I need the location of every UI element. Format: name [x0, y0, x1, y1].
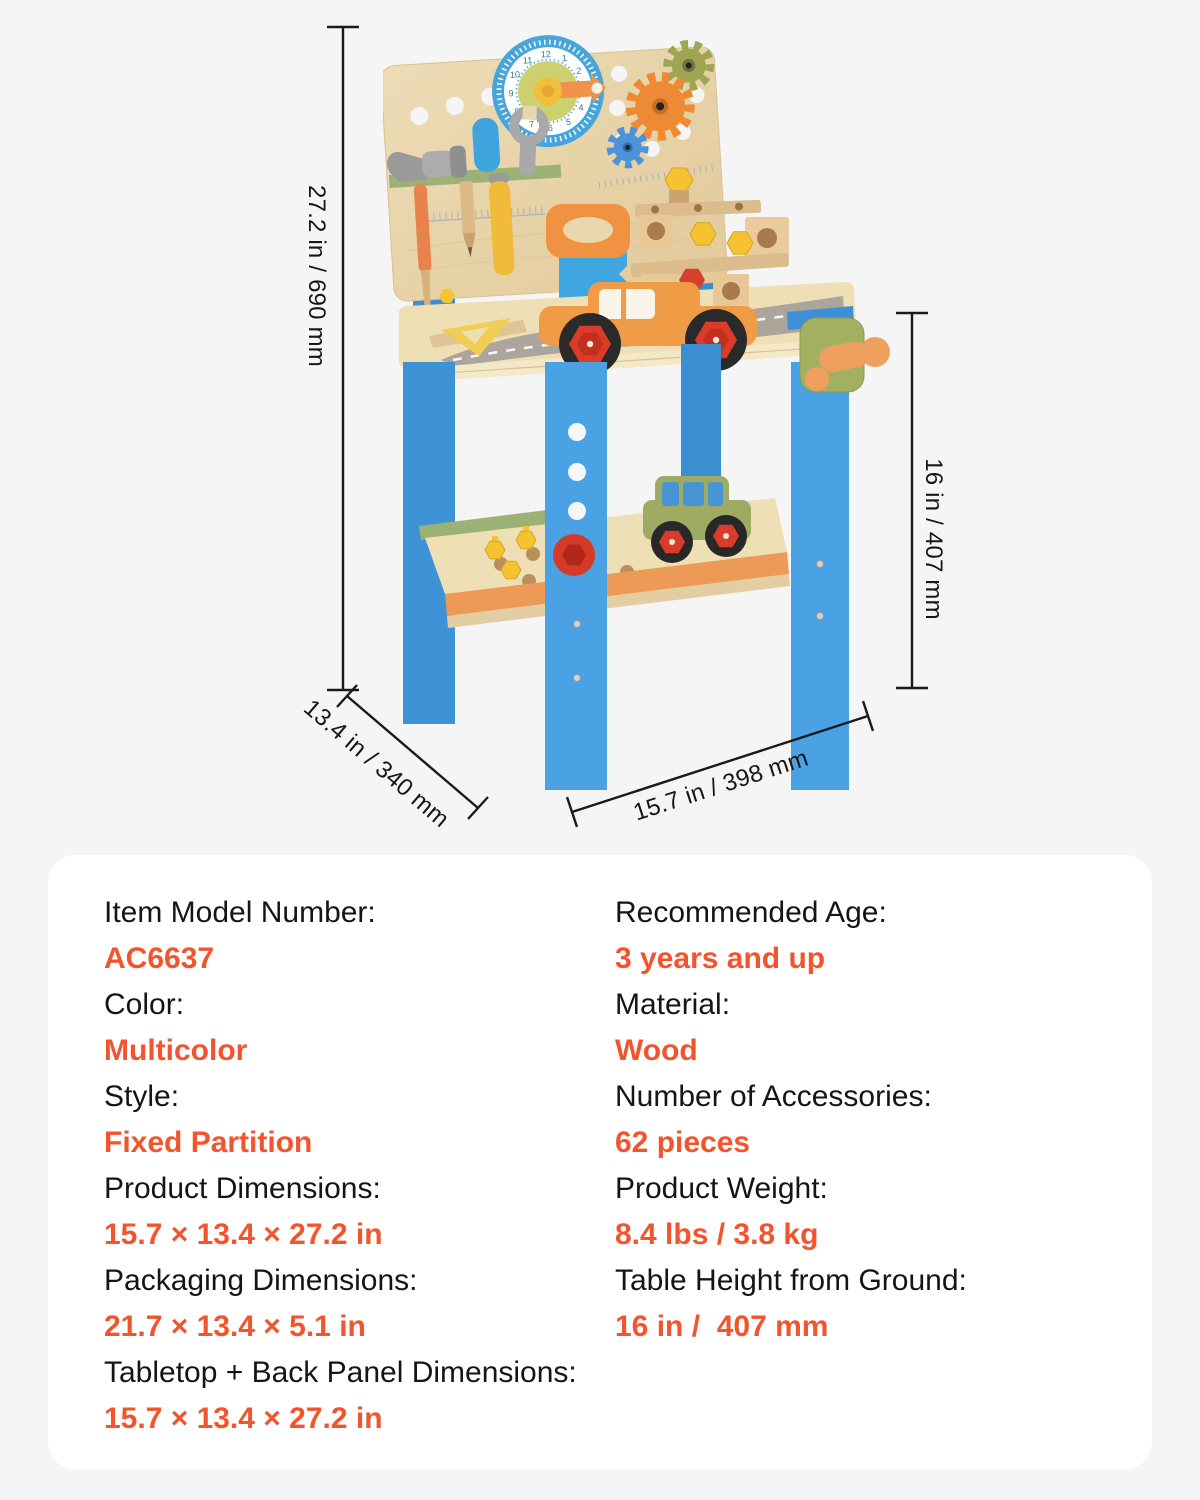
spec-label: Product Weight: [615, 1166, 967, 1212]
spec-value: Multicolor [104, 1028, 577, 1074]
blue-dowel [472, 117, 501, 172]
spec-row: Item Model Number: AC6637 [104, 890, 577, 982]
spec-column-right: Recommended Age: 3 years and up Material… [615, 890, 967, 1350]
dimension-table-height-label: 16 in / 407 mm [919, 409, 947, 669]
spec-value: Fixed Partition [104, 1120, 577, 1166]
svg-text:5: 5 [566, 117, 572, 127]
svg-text:9: 9 [508, 88, 514, 98]
red-knob [553, 534, 595, 576]
spec-row: Recommended Age: 3 years and up [615, 890, 967, 982]
dimension-height-label: 27.2 in / 690 mm [302, 146, 330, 406]
spec-label: Packaging Dimensions: [104, 1258, 577, 1304]
svg-text:1: 1 [562, 53, 568, 63]
spec-row: Color: Multicolor [104, 982, 577, 1074]
toy-vise [787, 306, 890, 392]
page: 121234567891011 [0, 0, 1200, 1500]
spec-row: Table Height from Ground: 16 in / 407 mm [615, 1258, 967, 1350]
spec-value: Wood [615, 1028, 967, 1074]
svg-text:2: 2 [576, 66, 582, 76]
spec-row: Number of Accessories: 62 pieces [615, 1074, 967, 1166]
spec-label: Style: [104, 1074, 577, 1120]
spec-row: Style: Fixed Partition [104, 1074, 577, 1166]
spec-row: Product Dimensions: 15.7 × 13.4 × 27.2 i… [104, 1166, 577, 1258]
spec-row: Material: Wood [615, 982, 967, 1074]
spec-label: Item Model Number: [104, 890, 577, 936]
svg-text:12: 12 [540, 49, 551, 60]
spec-value: 21.7 × 13.4 × 5.1 in [104, 1304, 577, 1350]
spec-value: 16 in / 407 mm [615, 1304, 967, 1350]
svg-text:7: 7 [529, 119, 535, 129]
spec-label: Color: [104, 982, 577, 1028]
svg-text:10: 10 [510, 69, 521, 80]
spec-value: 15.7 × 13.4 × 27.2 in [104, 1212, 577, 1258]
spec-row: Packaging Dimensions: 21.7 × 13.4 × 5.1 … [104, 1258, 577, 1350]
front-left-leg [545, 362, 607, 790]
spec-row: Tabletop + Back Panel Dimensions: 15.7 ×… [104, 1350, 577, 1442]
spec-value: 62 pieces [615, 1120, 967, 1166]
spec-label: Product Dimensions: [104, 1166, 577, 1212]
product-image: 121234567891011 [383, 12, 903, 812]
spec-row: Product Weight: 8.4 lbs / 3.8 kg [615, 1166, 967, 1258]
spec-label: Number of Accessories: [615, 1074, 967, 1120]
svg-text:4: 4 [578, 103, 584, 113]
spec-value: 3 years and up [615, 936, 967, 982]
spec-label: Material: [615, 982, 967, 1028]
spec-label: Recommended Age: [615, 890, 967, 936]
product-photo-area: 121234567891011 [0, 0, 1200, 855]
svg-text:11: 11 [523, 55, 533, 66]
spec-value: 8.4 lbs / 3.8 kg [615, 1212, 967, 1258]
spec-label: Tabletop + Back Panel Dimensions: [104, 1350, 577, 1396]
spec-value: 15.7 × 13.4 × 27.2 in [104, 1396, 577, 1442]
front-right-leg [791, 362, 849, 790]
spec-value: AC6637 [104, 936, 577, 982]
spec-label: Table Height from Ground: [615, 1258, 967, 1304]
spec-column-left: Item Model Number: AC6637 Color: Multico… [104, 890, 577, 1442]
